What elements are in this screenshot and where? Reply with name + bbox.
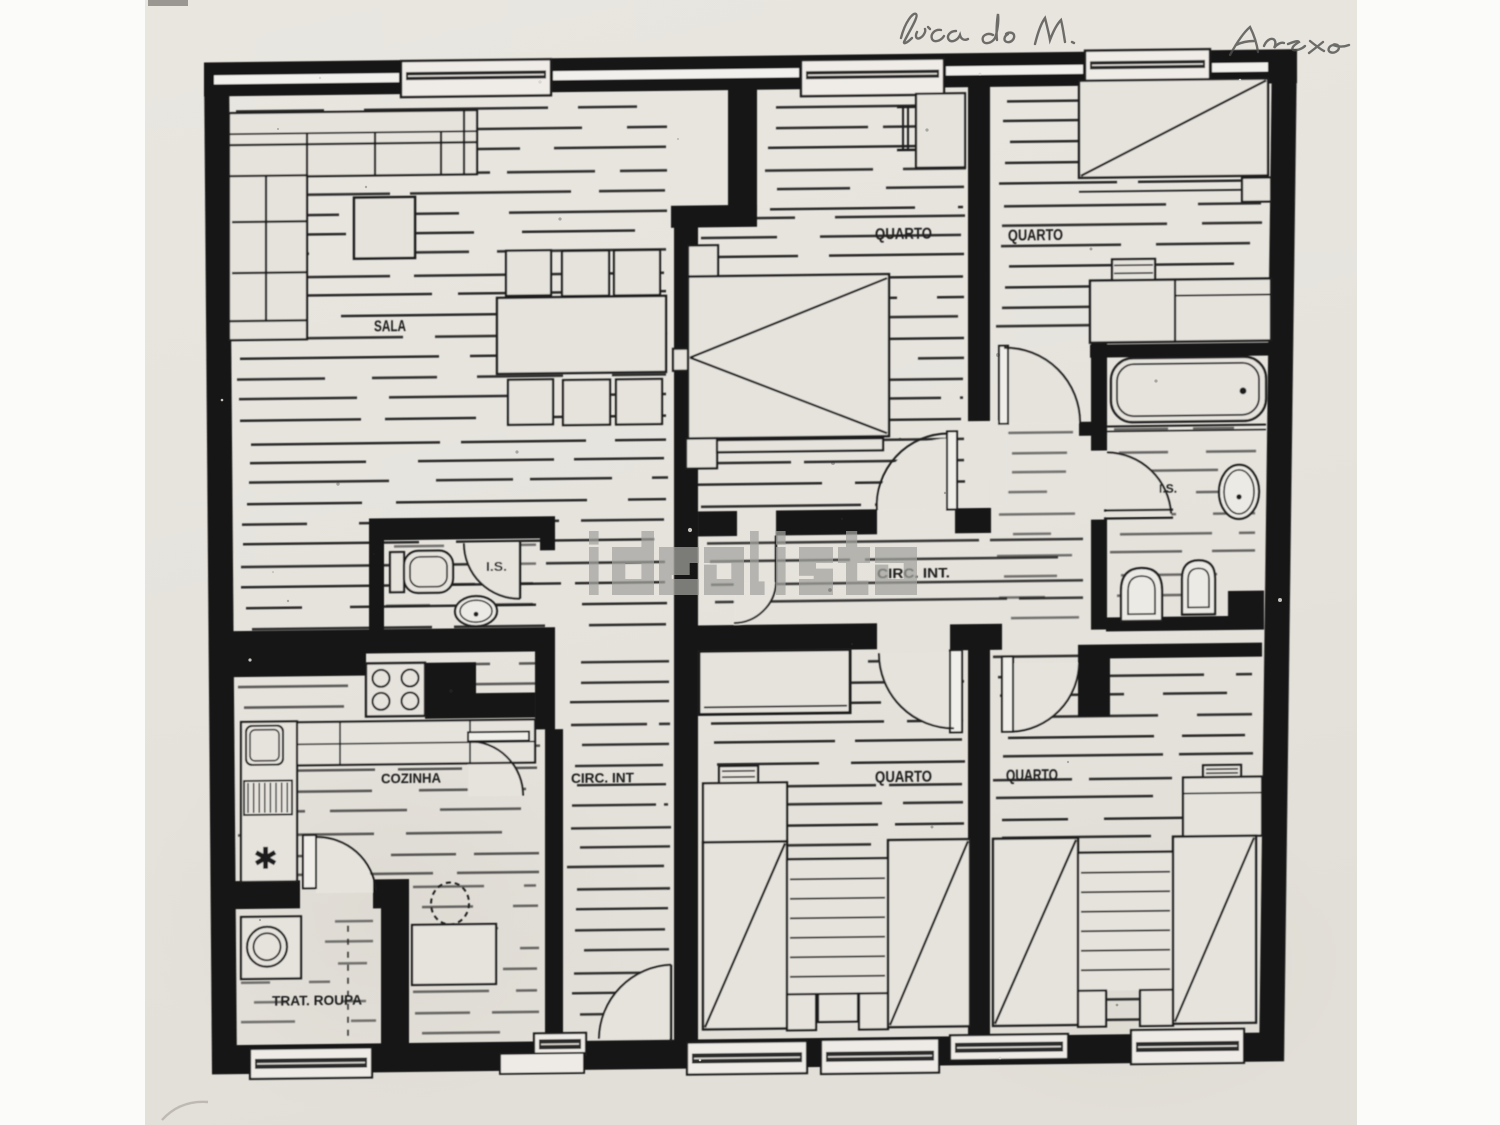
svg-text:QUARTO: QUARTO xyxy=(1008,227,1063,245)
svg-text:QUARTO: QUARTO xyxy=(875,769,932,787)
svg-text:CIRC. INT: CIRC. INT xyxy=(571,770,635,786)
svg-text:COZINHA: COZINHA xyxy=(381,771,441,787)
svg-text:I.S.: I.S. xyxy=(1159,482,1177,496)
svg-text:I.S.: I.S. xyxy=(486,560,507,574)
svg-text:✱: ✱ xyxy=(253,843,278,876)
svg-text:QUARTO: QUARTO xyxy=(875,226,932,244)
svg-text:QUARTO: QUARTO xyxy=(1006,767,1058,785)
svg-text:TRAT. ROUPA: TRAT. ROUPA xyxy=(272,993,362,1009)
svg-text:SALA: SALA xyxy=(374,318,406,335)
